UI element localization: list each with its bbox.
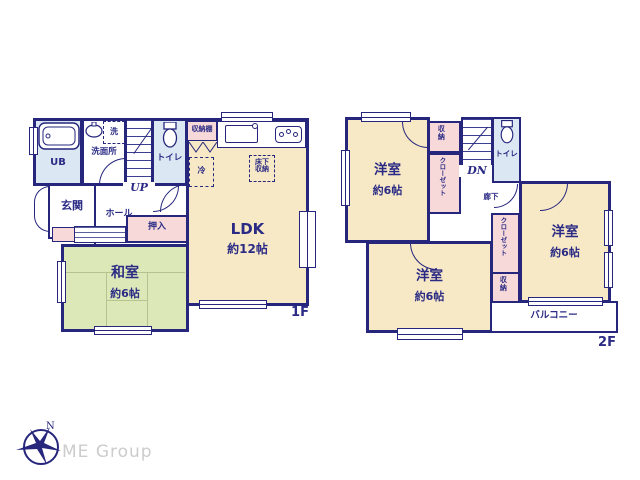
kitchen-faucet-icon: [252, 123, 258, 129]
door-arc-entrance: [34, 186, 50, 232]
ldk-size-label: 約12帖: [186, 243, 309, 256]
window: [57, 261, 66, 303]
stove-burner-icon: [279, 132, 284, 137]
stairs-dn-label: DN: [459, 165, 495, 177]
washing-machine-label: 洗: [103, 128, 125, 136]
ub-label: UB: [40, 158, 76, 169]
bedroom-sw-size-label: 約6帖: [366, 291, 493, 303]
window: [528, 297, 603, 306]
closet-2f-mid-label: クローゼット: [499, 217, 506, 256]
toilet-1f-label: トイレ: [151, 154, 188, 163]
washitsu-size-label: 約6帖: [61, 288, 189, 300]
logo-compass-letter: N: [46, 421, 55, 432]
window: [604, 252, 613, 288]
company-logo-bird-icon: N: [14, 420, 64, 470]
floor2-label: 2F: [592, 336, 622, 350]
bedroom-e-size-label: 約6帖: [519, 247, 611, 259]
toilet-2f-label: トイレ: [490, 150, 523, 158]
window: [604, 210, 613, 246]
tatami-line: [106, 300, 147, 301]
entrance-label: 玄関: [50, 200, 94, 212]
floor-plan-canvas: 収納棚 冷 床下 収納 LDK 約12帖 玄関 ホール 押入 UP 和室 約6帖…: [0, 0, 640, 480]
stairs-up-label: UP: [123, 182, 155, 194]
stove-burner-icon: [293, 132, 298, 137]
underfloor-storage-label: 床下 収納: [249, 159, 275, 174]
bedroom-nw-size-label: 約6帖: [345, 185, 430, 197]
stove-burner-icon: [286, 129, 291, 134]
bedroom-nw-label: 洋室: [345, 163, 430, 177]
underfloor-line2: 収納: [249, 166, 275, 173]
floor1-label: 1F: [285, 306, 315, 320]
window: [94, 326, 152, 335]
storage-2f-mid-label: 収納: [499, 276, 506, 292]
door-arc-toilet-2f: [494, 184, 518, 208]
window: [221, 112, 273, 122]
toilet-icon-1f: [161, 122, 179, 150]
bathtub-icon: [38, 122, 80, 150]
closet-2f-left-label: クローゼット: [438, 157, 445, 196]
room-bedroom-e: [519, 181, 611, 303]
bedroom-e-label: 洋室: [519, 225, 611, 239]
bay-window-ldk: [299, 211, 316, 268]
window: [397, 328, 463, 340]
oshiire-label: 押入: [126, 223, 188, 232]
washbasin-icon: [84, 122, 104, 138]
window: [199, 300, 267, 309]
bedroom-sw-label: 洋室: [366, 269, 493, 283]
washitsu-label: 和室: [61, 266, 189, 281]
company-logo-text: ME Group: [62, 442, 153, 462]
porch-side-box: [52, 227, 75, 242]
storage-2f-top-label: 収納: [437, 125, 444, 141]
porch-steps: [74, 226, 126, 243]
fridge-label: 冷: [189, 167, 214, 175]
stairs-1f: [125, 118, 153, 186]
ldk-label: LDK: [186, 222, 309, 238]
washroom-label: 洗面所: [79, 148, 129, 157]
window: [341, 150, 350, 206]
bifold-door-icon: [189, 142, 217, 153]
balcony-label: バルコニー: [490, 311, 618, 321]
window: [29, 127, 38, 155]
storage-shelf-label: 収納棚: [187, 126, 217, 133]
window: [361, 112, 411, 122]
toilet-icon-2f: [499, 120, 515, 146]
